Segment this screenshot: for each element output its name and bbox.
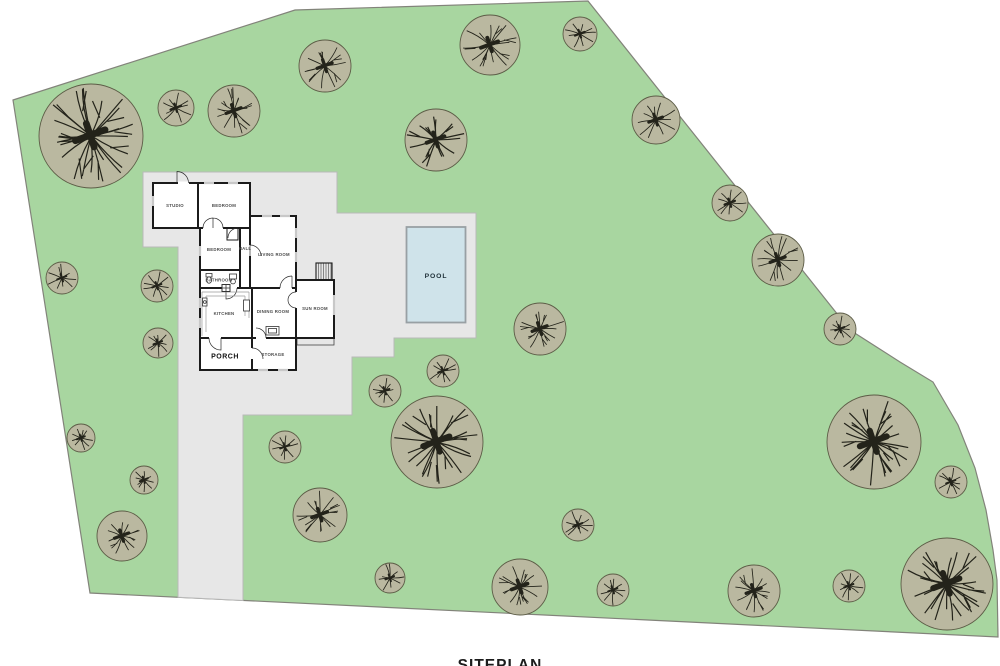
tree-symbol — [375, 563, 405, 593]
tree-symbol — [46, 262, 78, 294]
tree-symbol — [130, 466, 158, 494]
tree-symbol — [369, 375, 401, 407]
tree-symbol — [833, 570, 865, 602]
room-label-dining: DINING ROOM — [257, 309, 290, 314]
tree-symbol — [143, 328, 173, 358]
tree-symbol — [827, 395, 921, 489]
tree-symbol — [752, 234, 804, 286]
tree-symbol — [514, 303, 566, 355]
room-label-sunroom: SUN ROOM — [302, 306, 328, 311]
tree-symbol — [269, 431, 301, 463]
tree-symbol — [158, 90, 194, 126]
tree-symbol — [712, 185, 748, 221]
room-label-kitchen: KITCHEN — [214, 311, 235, 316]
tree-symbol — [632, 96, 680, 144]
tree-symbol — [67, 424, 95, 452]
tree-symbol — [562, 509, 594, 541]
tree-symbol — [901, 538, 993, 630]
tree-symbol — [391, 396, 483, 488]
tree-symbol — [141, 270, 173, 302]
room-label-bedroom2: BEDROOM — [207, 247, 231, 252]
tree-symbol — [935, 466, 967, 498]
tree-symbol — [405, 109, 467, 171]
room-label-bedroom1: BEDROOM — [212, 203, 236, 208]
room-label-studio: STUDIO — [166, 203, 184, 208]
siteplan-canvas: STUDIO BEDROOM BEDROOM HALL LIVING ROOM … — [0, 0, 1000, 666]
tree-symbol — [39, 84, 143, 188]
tree-symbol — [97, 511, 147, 561]
room-label-porch: PORCH — [211, 354, 239, 361]
tree-symbol — [597, 574, 629, 606]
dining-fireplace — [266, 327, 279, 336]
pool-label: POOL — [425, 273, 448, 280]
tree-symbol — [460, 15, 520, 75]
room-label-living: LIVING ROOM — [258, 252, 290, 257]
siteplan-drawing: STUDIO BEDROOM BEDROOM HALL LIVING ROOM … — [0, 0, 1000, 666]
tree-symbol — [299, 40, 351, 92]
tree-symbol — [427, 355, 459, 387]
room-label-storage: STORAGE — [262, 352, 285, 357]
tree-symbol — [728, 565, 780, 617]
room-label-bathroom: BATHROOM — [206, 278, 233, 283]
tree-symbol — [824, 313, 856, 345]
tree-symbol — [293, 488, 347, 542]
tree-symbol — [208, 85, 260, 137]
room-label-hall: HALL — [239, 246, 252, 251]
tree-symbol — [563, 17, 597, 51]
tree-symbol — [492, 559, 548, 615]
plan-title: SITEPLAN — [458, 657, 543, 666]
